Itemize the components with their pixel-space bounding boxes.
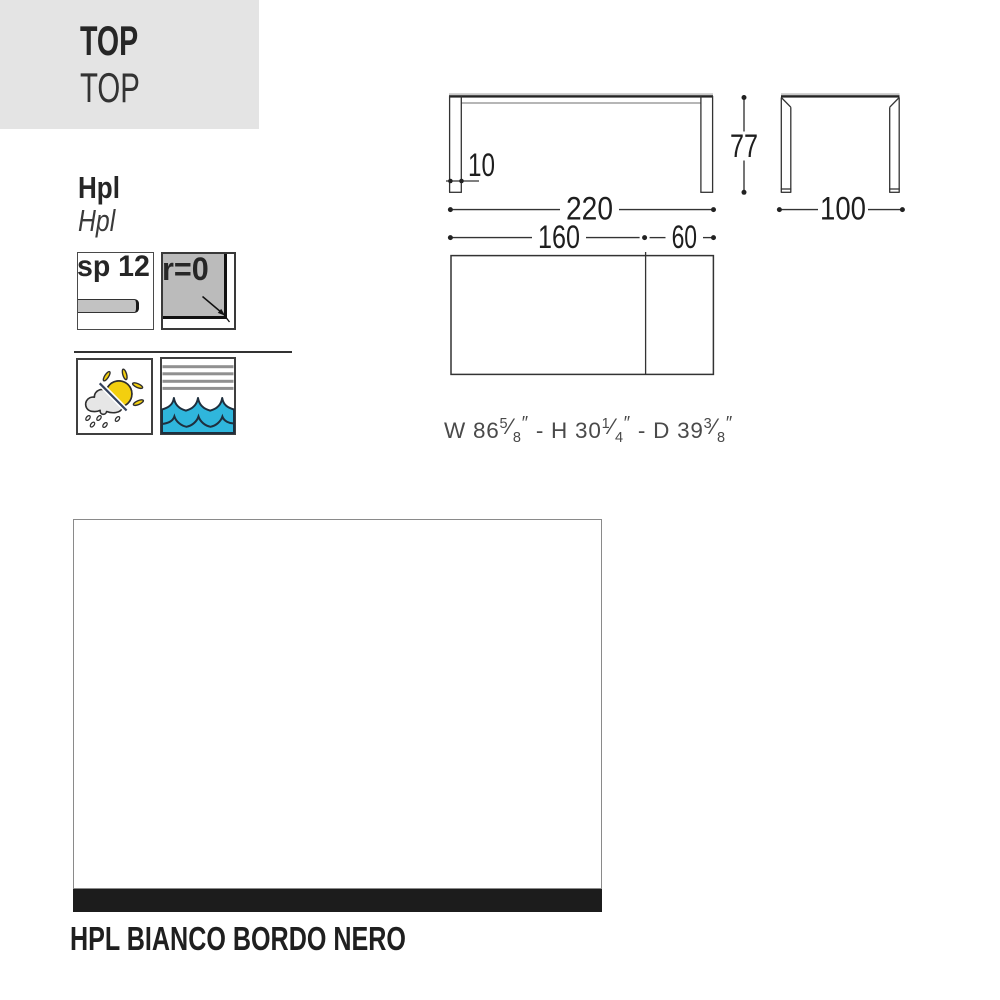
svg-text:W 865∕8″ - H 301∕4″ - D 393∕8: W 865∕8″ - H 301∕4″ - D 393∕8″ — [444, 413, 733, 446]
svg-text:77: 77 — [730, 129, 758, 165]
svg-text:160: 160 — [538, 220, 580, 256]
svg-text:10: 10 — [468, 148, 495, 184]
svg-text:100: 100 — [820, 192, 866, 227]
svg-text:60: 60 — [672, 219, 697, 255]
